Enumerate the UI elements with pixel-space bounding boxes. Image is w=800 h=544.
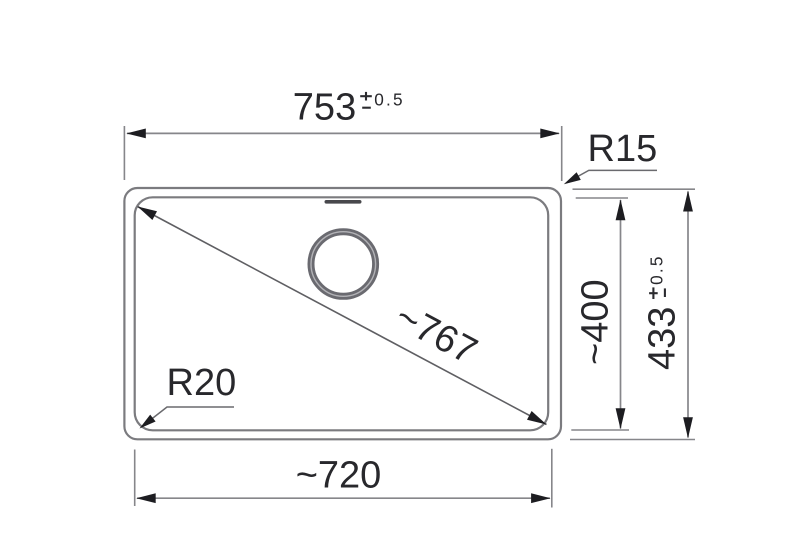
svg-text:753: 753 (293, 87, 356, 129)
svg-text:0.5: 0.5 (647, 254, 667, 285)
svg-text:~767: ~767 (388, 296, 483, 373)
svg-text:0.5: 0.5 (374, 89, 405, 109)
svg-text:~400: ~400 (574, 279, 616, 365)
svg-text:~720: ~720 (296, 455, 382, 497)
svg-text:R15: R15 (588, 128, 658, 170)
svg-text:R20: R20 (167, 362, 237, 404)
svg-text:433: 433 (641, 307, 683, 370)
